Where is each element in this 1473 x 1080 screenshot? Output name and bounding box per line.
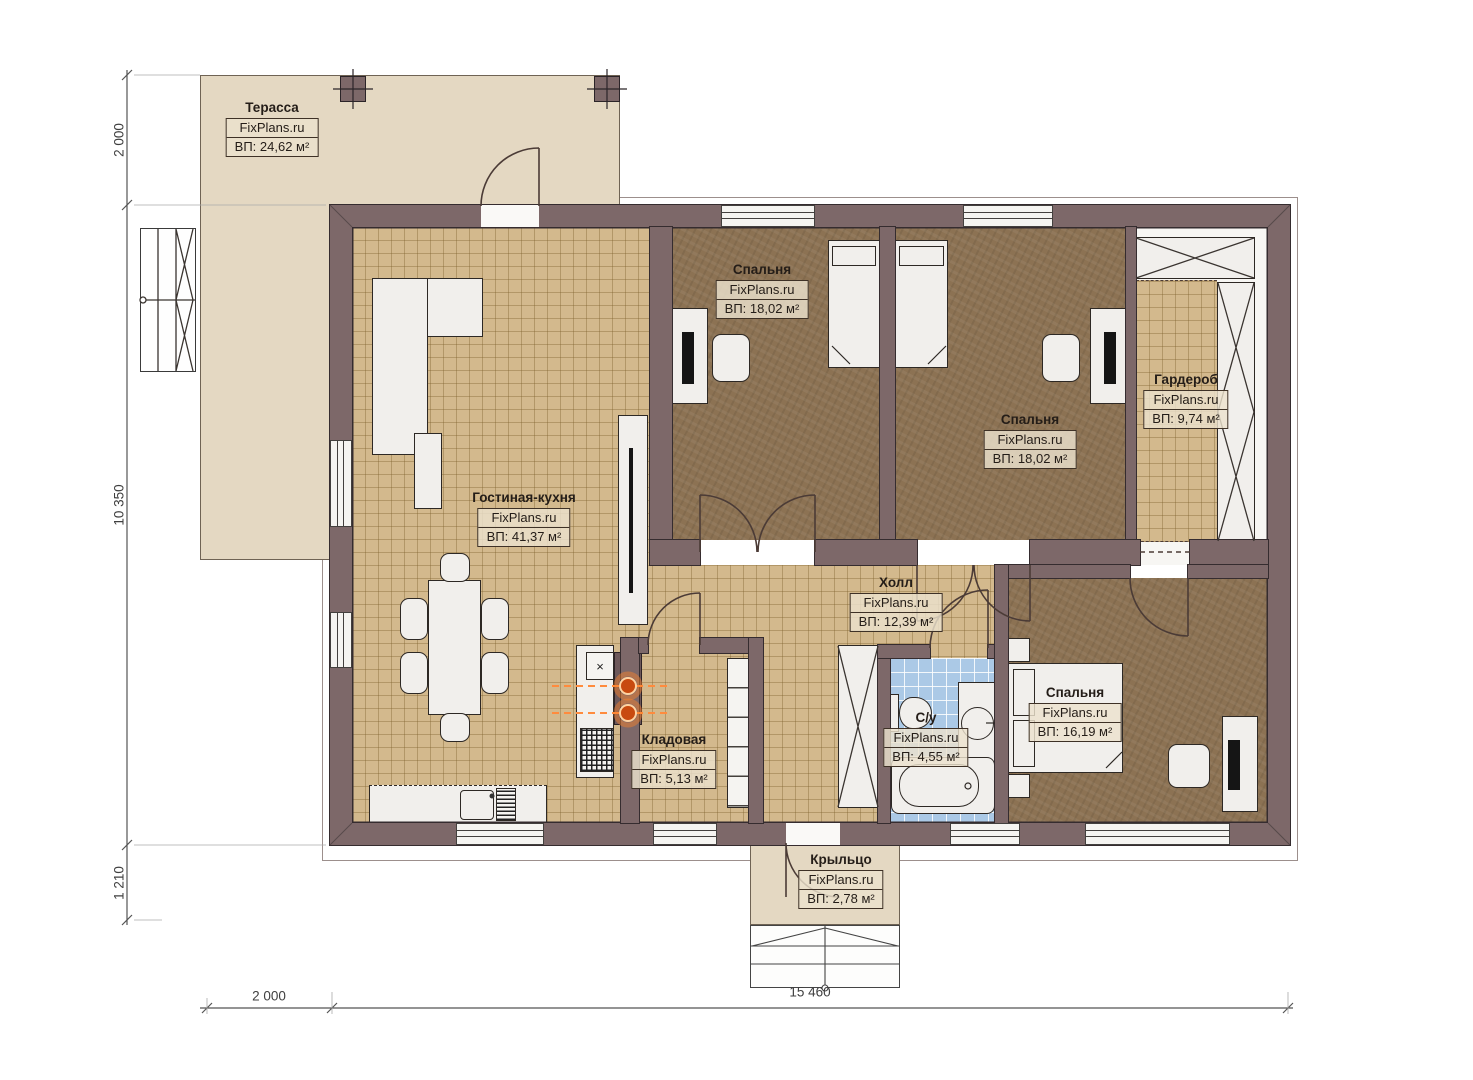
living-window-left-lower: [330, 612, 352, 668]
bedroom2-window: [963, 205, 1053, 227]
room-info-box: FixPlans.ru ВП: 16,19 м²: [1029, 703, 1122, 742]
wall-bathroom-bedroom3: [995, 565, 1008, 823]
room-name: Гостиная-кухня: [472, 490, 575, 505]
terrace-door-threshold: [481, 205, 539, 227]
wall-bedroom1-bedroom2: [880, 227, 895, 540]
porch-steps: [750, 925, 900, 988]
brand-watermark: FixPlans.ru: [799, 871, 882, 890]
floor-plan-canvas: ×: [0, 0, 1473, 1080]
room-label-bedroom3: Спальня FixPlans.ru ВП: 16,19 м²: [1029, 685, 1122, 742]
room-label-bedroom1: Спальня FixPlans.ru ВП: 18,02 м²: [716, 262, 809, 319]
room-area: ВП: 12,39 м²: [851, 613, 942, 631]
wall-storage-right: [749, 638, 763, 823]
room-info-box: FixPlans.ru ВП: 18,02 м²: [716, 280, 809, 319]
room-area: ВП: 24,62 м²: [227, 138, 318, 156]
living-window-left-upper: [330, 440, 352, 527]
brand-watermark: FixPlans.ru: [632, 751, 715, 770]
room-label-storage: Кладовая FixPlans.ru ВП: 5,13 м²: [631, 732, 716, 789]
room-name: Спальня: [1029, 685, 1122, 700]
kitchen-window: [456, 823, 544, 845]
brand-watermark: FixPlans.ru: [717, 281, 808, 300]
brand-watermark: FixPlans.ru: [851, 594, 942, 613]
room-info-box: FixPlans.ru ВП: 24,62 м²: [226, 118, 319, 157]
wall-bedroom2-wardrobe: [1126, 227, 1136, 540]
room-label-bathroom: С/у FixPlans.ru ВП: 4,55 м²: [883, 710, 968, 767]
room-info-box: FixPlans.ru ВП: 5,13 м²: [631, 750, 716, 789]
bedroom3-window: [1085, 823, 1230, 845]
room-info-box: FixPlans.ru ВП: 12,39 м²: [850, 593, 943, 632]
wall-storage-top: [639, 638, 648, 653]
wall-bathroom-top: [878, 645, 930, 658]
wall-bedrooms-hall: [1190, 540, 1268, 565]
room-area: ВП: 18,02 м²: [717, 300, 808, 318]
room-label-terrace: Терасса FixPlans.ru ВП: 24,62 м²: [226, 100, 319, 157]
wall-bedrooms-hall: [1030, 540, 1140, 565]
terrace-pillar: [340, 76, 366, 102]
room-name: Спальня: [716, 262, 809, 277]
room-label-wardrobe: Гардероб FixPlans.ru ВП: 9,74 м²: [1143, 372, 1228, 429]
storage-window: [653, 823, 717, 845]
room-name: Крыльцо: [798, 852, 883, 867]
dim-left-bottom: 1 210: [112, 866, 127, 900]
room-area: ВП: 5,13 м²: [632, 770, 715, 788]
brand-watermark: FixPlans.ru: [985, 431, 1076, 450]
terrace-pillar: [594, 76, 620, 102]
brand-watermark: FixPlans.ru: [1030, 704, 1121, 723]
room-area: ВП: 41,37 м²: [479, 528, 570, 546]
room-area: ВП: 16,19 м²: [1030, 723, 1121, 741]
entrance-door-threshold: [786, 823, 840, 845]
wall-living-bedroom1: [650, 227, 672, 540]
room-name: Холл: [850, 575, 943, 590]
room-name: Спальня: [984, 412, 1077, 427]
room-label-bedroom2: Спальня FixPlans.ru ВП: 18,02 м²: [984, 412, 1077, 469]
bathroom-window: [950, 823, 1020, 845]
room-area: ВП: 4,55 м²: [884, 748, 967, 766]
wall-bedrooms-hall: [650, 540, 700, 565]
room-info-box: FixPlans.ru ВП: 18,02 м²: [984, 430, 1077, 469]
dim-left-middle: 10 350: [112, 484, 127, 525]
room-info-box: FixPlans.ru ВП: 4,55 м²: [883, 728, 968, 767]
room-name: Терасса: [226, 100, 319, 115]
wall-hall-bedroom3: [995, 565, 1130, 578]
room-area: ВП: 18,02 м²: [985, 450, 1076, 468]
room-info-box: FixPlans.ru ВП: 41,37 м²: [478, 508, 571, 547]
bedroom1-window: [721, 205, 815, 227]
dim-bottom-left: 2 000: [252, 989, 286, 1004]
outdoor-unit: [140, 228, 196, 372]
wall-storage-left: [621, 638, 639, 823]
dim-bottom-right: 15 460: [789, 985, 830, 1000]
room-name: Кладовая: [631, 732, 716, 747]
room-info-box: FixPlans.ru ВП: 9,74 м²: [1143, 390, 1228, 429]
dim-left-top: 2 000: [112, 123, 127, 157]
room-label-hall: Холл FixPlans.ru ВП: 12,39 м²: [850, 575, 943, 632]
room-area: ВП: 9,74 м²: [1144, 410, 1227, 428]
room-name: Гардероб: [1143, 372, 1228, 387]
wall-hall-bedroom3: [1188, 565, 1268, 578]
room-name: С/у: [883, 710, 968, 725]
room-label-living: Гостиная-кухня FixPlans.ru ВП: 41,37 м²: [472, 490, 575, 547]
wall-bedrooms-hall: [815, 540, 917, 565]
brand-watermark: FixPlans.ru: [227, 119, 318, 138]
room-label-porch: Крыльцо FixPlans.ru ВП: 2,78 м²: [798, 852, 883, 909]
brand-watermark: FixPlans.ru: [479, 509, 570, 528]
brand-watermark: FixPlans.ru: [884, 729, 967, 748]
room-info-box: FixPlans.ru ВП: 2,78 м²: [798, 870, 883, 909]
room-area: ВП: 2,78 м²: [799, 890, 882, 908]
brand-watermark: FixPlans.ru: [1144, 391, 1227, 410]
